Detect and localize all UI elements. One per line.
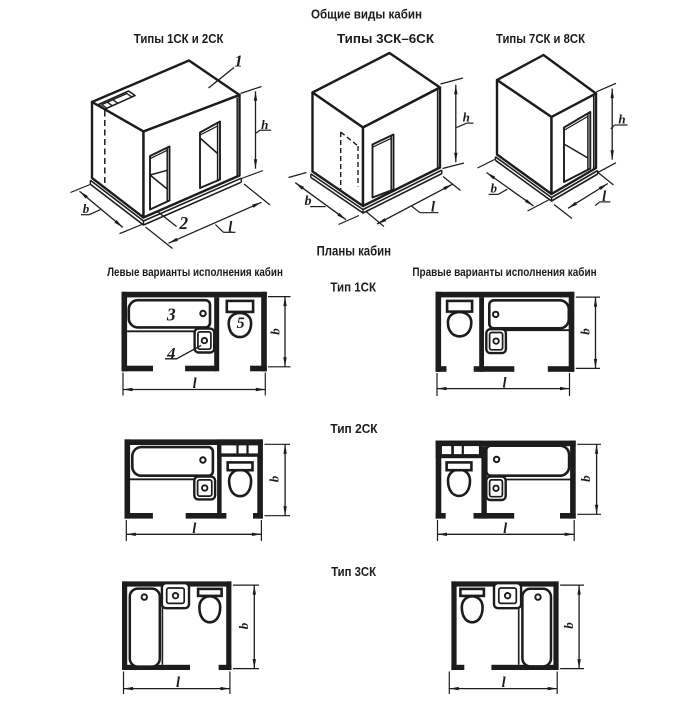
svg-text:Тип 1СК: Тип 1СК bbox=[330, 280, 376, 295]
svg-text:b: b bbox=[578, 475, 593, 482]
svg-text:l: l bbox=[502, 675, 506, 691]
svg-text:b: b bbox=[267, 475, 282, 482]
svg-text:l: l bbox=[176, 675, 180, 691]
svg-text:h: h bbox=[261, 117, 268, 132]
svg-text:Типы 1СК и 2СК: Типы 1СК и 2СК bbox=[134, 31, 224, 46]
svg-text:l: l bbox=[431, 200, 435, 216]
svg-text:Тип 3СК: Тип 3СК bbox=[331, 564, 377, 579]
svg-text:b: b bbox=[561, 622, 576, 629]
svg-text:Типы 3СК–6СК: Типы 3СК–6СК bbox=[337, 31, 435, 46]
svg-text:l: l bbox=[503, 521, 507, 537]
svg-text:b: b bbox=[268, 328, 283, 335]
svg-text:1: 1 bbox=[234, 52, 243, 71]
svg-text:2: 2 bbox=[178, 213, 188, 233]
svg-text:Общие виды кабин: Общие виды кабин bbox=[311, 6, 422, 21]
svg-text:b: b bbox=[491, 181, 498, 196]
svg-text:l: l bbox=[228, 219, 232, 235]
svg-text:5: 5 bbox=[237, 315, 245, 332]
svg-text:Планы кабин: Планы кабин bbox=[317, 244, 391, 259]
svg-text:l: l bbox=[602, 189, 606, 205]
svg-text:l: l bbox=[193, 376, 197, 392]
svg-text:Правые варианты исполнения каб: Правые варианты исполнения кабин bbox=[412, 265, 596, 279]
svg-text:h: h bbox=[618, 112, 625, 127]
svg-text:l: l bbox=[192, 521, 196, 537]
svg-text:Типы 7СК и 8СК: Типы 7СК и 8СК bbox=[496, 31, 586, 46]
svg-text:Тип 2СК: Тип 2СК bbox=[330, 421, 378, 436]
svg-text:4: 4 bbox=[166, 344, 176, 363]
svg-text:Левые варианты исполнения каби: Левые варианты исполнения кабин bbox=[107, 265, 283, 279]
svg-text:h: h bbox=[463, 109, 470, 124]
svg-text:3: 3 bbox=[166, 304, 176, 324]
svg-text:b: b bbox=[83, 201, 90, 216]
svg-text:b: b bbox=[578, 328, 593, 335]
svg-text:b: b bbox=[236, 622, 251, 629]
svg-text:l: l bbox=[502, 375, 506, 391]
